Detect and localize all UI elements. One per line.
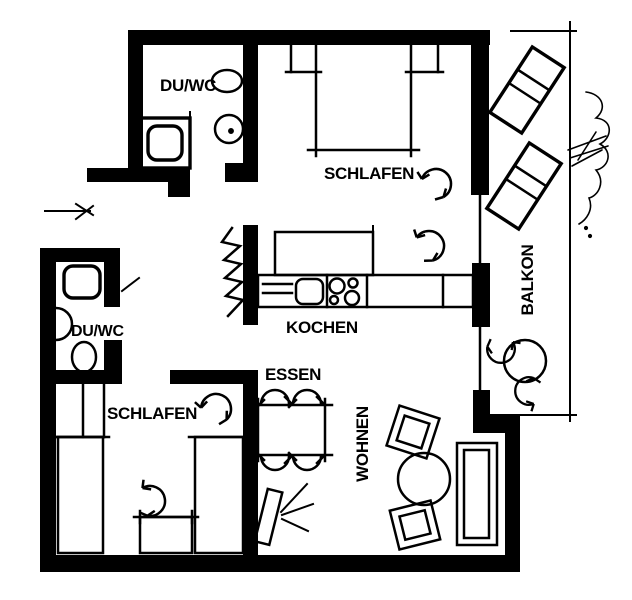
- tall-cabinet-icon: [275, 226, 373, 275]
- kitchen-counter-icon: [258, 275, 473, 307]
- room-balcony: BALKON: [481, 47, 609, 413]
- wall-right-a: [471, 30, 489, 195]
- single-bed-icon: [189, 437, 243, 553]
- sofa-icon: [457, 443, 497, 545]
- door-swing-icon: [194, 391, 234, 429]
- sink-icon: [296, 279, 323, 304]
- armchair-icon: [387, 406, 440, 459]
- wardrobe-icon: [56, 385, 104, 437]
- toilet-icon: [212, 70, 242, 92]
- washbasin-icon: [215, 115, 243, 143]
- room-bathroom-bottom: DU/WC: [56, 266, 139, 372]
- wall-right-lower: [505, 415, 520, 572]
- room-label-balcony: BALKON: [518, 245, 537, 316]
- wall-entry-foot: [168, 182, 190, 197]
- floor-plan-drawing: DU/WC SCHLAFEN: [0, 0, 632, 600]
- floor-lamp-icon: [255, 484, 313, 545]
- armchair-icon: [390, 501, 440, 550]
- sun-lounger-icon: [487, 143, 561, 229]
- wall-bath-bottom-right-lower: [104, 340, 122, 372]
- toilet-icon: [72, 342, 96, 372]
- sun-lounger-icon: [490, 47, 564, 133]
- room-label-bedroom-bottom: SCHLAFEN: [107, 404, 197, 423]
- room-dining: ESSEN: [251, 365, 332, 545]
- plant-sketch-icon: [568, 92, 609, 237]
- room-label-bedroom-top: SCHLAFEN: [324, 164, 414, 183]
- room-kitchen: KOCHEN: [222, 226, 473, 337]
- room-label-bathroom-top: DU/WC: [160, 76, 216, 95]
- room-label-kitchen: KOCHEN: [286, 318, 358, 337]
- shower-icon: [64, 266, 100, 298]
- room-bedroom-bottom: SCHLAFEN: [52, 385, 243, 553]
- floor-plan: DU/WC SCHLAFEN: [0, 0, 632, 600]
- balcony-table-icon: [504, 340, 546, 382]
- single-bed-icon: [52, 437, 109, 553]
- desk-icon: [134, 511, 198, 553]
- entrance-arrow-icon: [45, 204, 93, 219]
- coffee-table-icon: [398, 453, 450, 505]
- wall-bath-bottom-right-upper: [104, 262, 120, 307]
- wall-bedroom-bottom-right: [243, 370, 258, 555]
- wall-kitchen-left: [243, 225, 258, 325]
- door-swing-icon: [407, 227, 447, 265]
- balcony-chair-icon: [481, 327, 522, 369]
- shower-icon: [140, 112, 190, 168]
- wall-top: [128, 30, 490, 45]
- wall-bath-top-right: [243, 30, 258, 170]
- room-label-dining: ESSEN: [265, 365, 321, 384]
- door-leaf-icon: [122, 278, 139, 291]
- wall-entry-stub: [87, 168, 190, 182]
- wall-right-b: [472, 263, 490, 327]
- room-bathroom-top: DU/WC: [140, 70, 243, 168]
- balcony-chair-icon: [510, 371, 551, 413]
- room-label-living: WOHNEN: [353, 406, 372, 482]
- double-bed-icon: [308, 45, 419, 156]
- wall-bath-top-foot: [225, 163, 258, 182]
- room-label-bathroom-bottom: DU/WC: [71, 323, 124, 340]
- wall-bath-bottom-top: [40, 248, 120, 262]
- dining-table-icon: [251, 399, 332, 461]
- washbasin-icon: [56, 308, 72, 340]
- coat-rack-icon: [222, 228, 243, 316]
- door-swing-icon: [417, 169, 451, 199]
- stove-icon: [330, 279, 360, 306]
- wall-bottom: [40, 555, 520, 572]
- wall-left-lower: [40, 248, 56, 572]
